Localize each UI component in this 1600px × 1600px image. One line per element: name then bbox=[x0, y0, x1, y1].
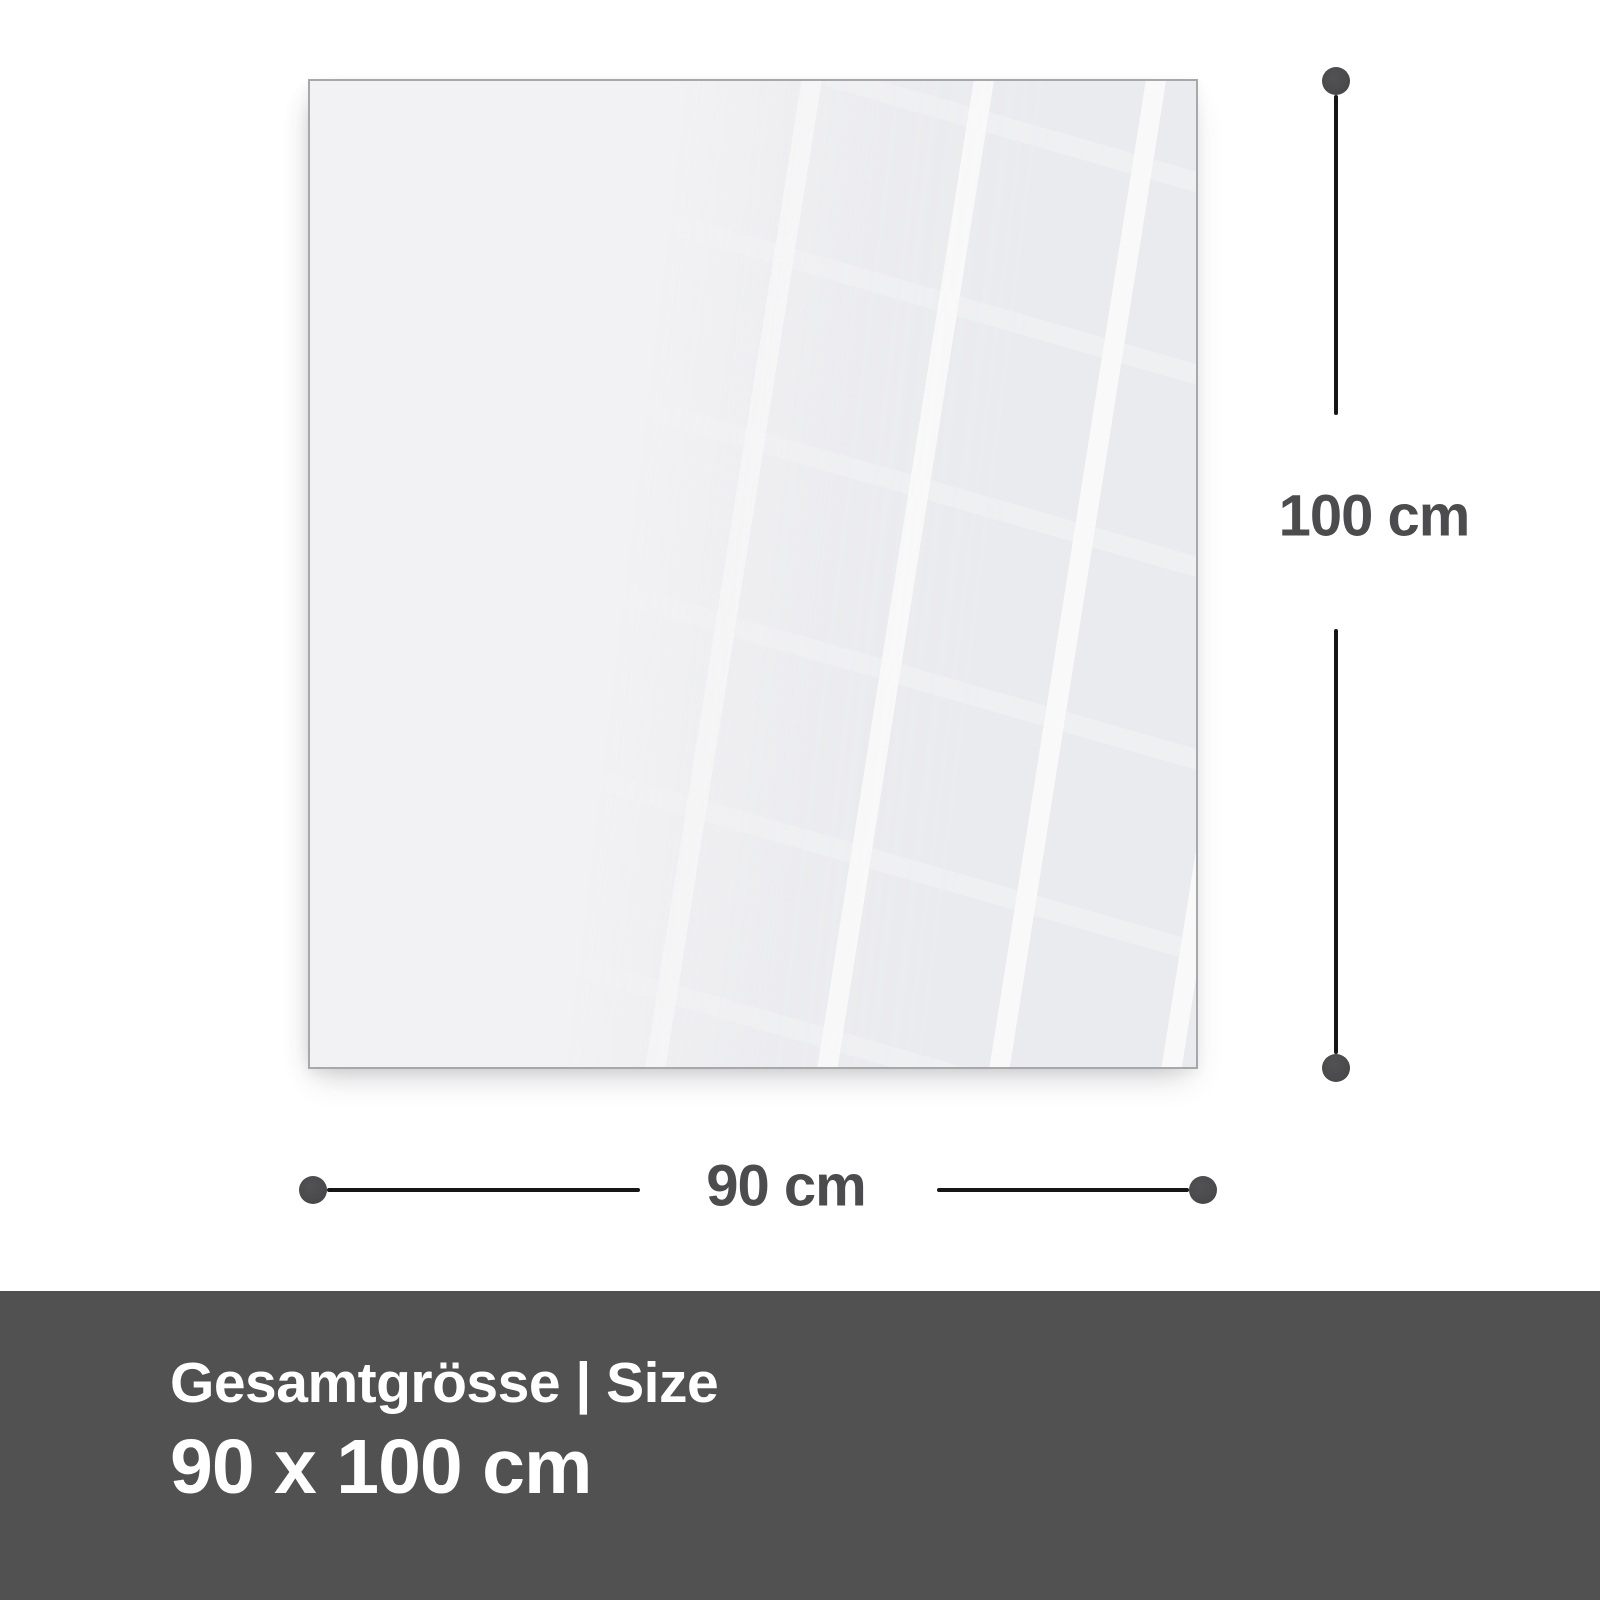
width-label: 90 cm bbox=[706, 1153, 865, 1220]
width-dimension-line-right bbox=[937, 1188, 1189, 1192]
dimension-endpoint-dot-right bbox=[1189, 1176, 1217, 1204]
product-size-diagram: 100 cm 90 cm Gesamtgrösse | Size 90 x 10… bbox=[0, 0, 1600, 1600]
height-dimension-line-lower bbox=[1334, 629, 1338, 1054]
banner-caption: Gesamtgrösse | Size bbox=[170, 1355, 718, 1412]
glass-panel bbox=[308, 79, 1198, 1069]
panel-reflection bbox=[308, 79, 1198, 1069]
dimension-endpoint-dot-left bbox=[299, 1176, 327, 1204]
height-dimension-line-upper bbox=[1334, 95, 1338, 415]
banner-size-value: 90 x 100 cm bbox=[170, 1429, 591, 1506]
dimension-endpoint-dot-bottom bbox=[1322, 1054, 1350, 1082]
size-banner: Gesamtgrösse | Size 90 x 100 cm bbox=[0, 1291, 1600, 1600]
width-dimension-line-left bbox=[327, 1188, 640, 1192]
height-label: 100 cm bbox=[1279, 483, 1470, 550]
dimension-endpoint-dot-top bbox=[1322, 67, 1350, 95]
